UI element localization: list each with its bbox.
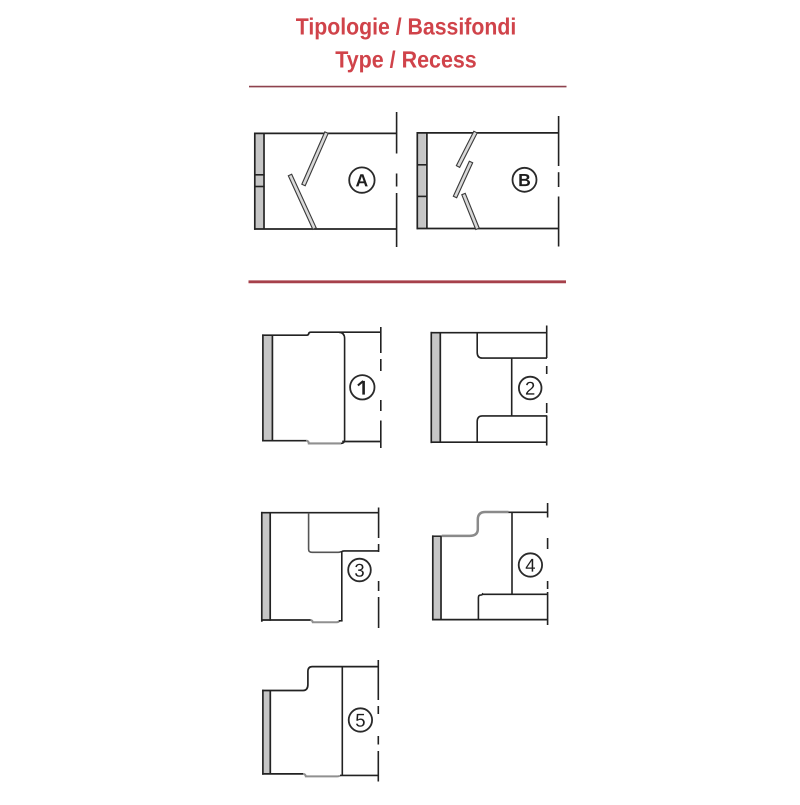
svg-text:B: B <box>518 170 531 190</box>
svg-text:2: 2 <box>525 378 535 399</box>
svg-text:4: 4 <box>525 555 535 576</box>
svg-text:Tipologie / Bassifondi: Tipologie / Bassifondi <box>296 13 517 39</box>
svg-text:Type / Recess: Type / Recess <box>335 46 477 72</box>
svg-text:5: 5 <box>355 710 365 731</box>
svg-text:A: A <box>356 170 369 190</box>
svg-text:3: 3 <box>354 560 364 581</box>
